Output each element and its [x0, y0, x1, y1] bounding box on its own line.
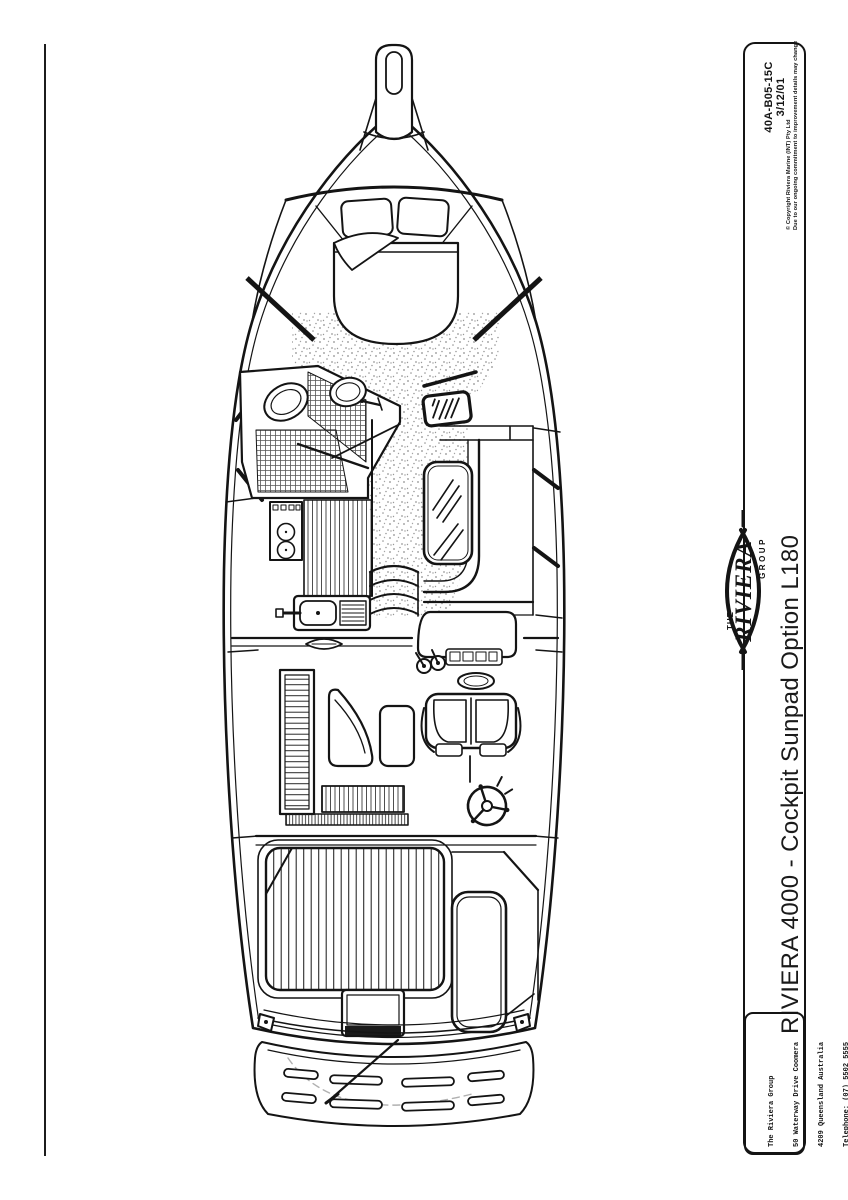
- riviera-group-logo: THE RIVIERA GROUP: [711, 510, 775, 670]
- copyright-line-2: Due to our ongoing commitment to improve…: [793, 48, 800, 230]
- logo-group: GROUP: [758, 537, 767, 579]
- helm-seat: [422, 694, 521, 756]
- stove: [270, 502, 302, 560]
- copyright-line-1: © Copyright Riviera Marine (INT) Pty Ltd: [786, 48, 793, 230]
- riviera-logo-art: THE RIVIERA GROUP: [711, 510, 775, 670]
- cockpit-sunpad: [452, 892, 506, 1032]
- opening-hatch: [422, 391, 471, 426]
- contact-line-2: 50 Waterway Drive Coomera: [793, 1020, 801, 1147]
- drawing-sheet: 40A-B05-15C 3/12/01 © Copyright Riviera …: [0, 0, 848, 1200]
- copyright-block: © Copyright Riviera Marine (INT) Pty Ltd…: [786, 48, 800, 230]
- contact-line-1: The Riviera Group: [768, 1020, 776, 1147]
- teak-floor: [266, 848, 444, 990]
- engine-hatch: [342, 990, 404, 1036]
- drawing-number: 40A-B05-15C: [764, 42, 776, 152]
- contact-line-3: 4209 Queensland Australia: [818, 1020, 826, 1147]
- compass: [458, 673, 494, 689]
- contact-line-4: Telephone: (07) 5502 5555: [843, 1020, 848, 1147]
- logo-riviera: RIVIERA: [731, 540, 756, 643]
- cabin-window: [424, 462, 472, 564]
- swim-platform: [255, 1040, 534, 1126]
- drawing-number-block: 40A-B05-15C 3/12/01: [764, 42, 788, 152]
- contact-block: The Riviera Group 50 Waterway Drive Coom…: [751, 1020, 803, 1147]
- drawing-title: RIVIERA 4000 - Cockpit Sunpad Option L18…: [777, 430, 804, 1034]
- bow-pulpit: [360, 45, 428, 150]
